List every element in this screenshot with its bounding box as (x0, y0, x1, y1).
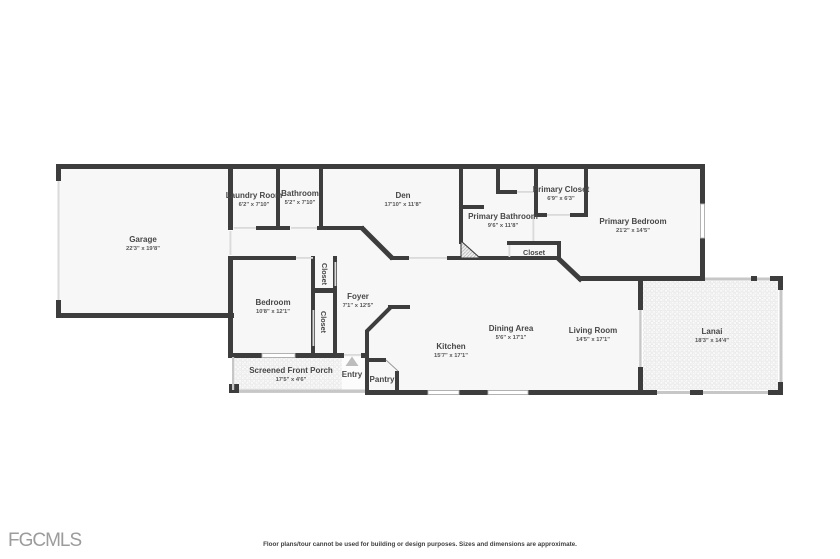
laundry-door (234, 227, 256, 229)
garage-bottom-wall (56, 313, 234, 318)
floor-plan: Garage 22'3" x 19'8" Laundry Room 6'2" x… (0, 0, 840, 559)
room-dims-den: 17'10" x 11'8" (385, 202, 422, 208)
front-door-opening (344, 354, 361, 356)
room-label-lanai: Lanai (702, 327, 723, 336)
room-label-screened-front-porch: Screened Front Porch (249, 366, 333, 375)
porch-left-screen (232, 357, 234, 390)
room-label-pantry: Pantry (370, 375, 395, 384)
den-entrance-opening (409, 257, 447, 259)
lanai-bottom-post (690, 390, 703, 395)
linen-closet-top-wall (507, 241, 561, 245)
room-dims-screened-front-porch: 17'5" x 4'6" (276, 377, 307, 383)
bathroom-door (291, 227, 317, 229)
closet-upper-door (335, 262, 337, 286)
bedroom-window (262, 354, 295, 358)
bedroom-top-wall (228, 256, 296, 260)
lanai-sliding-door (639, 310, 641, 367)
room-label-living-room: Living Room (569, 326, 617, 335)
room-label-bedroom: Bedroom (255, 298, 290, 307)
room-dims-laundry-room: 6'2" x 7'10" (239, 202, 270, 208)
room-label-foyer: Foyer (347, 292, 369, 301)
room-dims-living-room: 14'5" x 17'1" (576, 337, 610, 343)
lanai-bottom-screen-2 (703, 391, 768, 394)
wc-bottom-wall (496, 190, 517, 194)
lanai-bottom-screen-1 (657, 391, 690, 394)
primary-bedroom-window (701, 204, 705, 238)
foyer-bottom-stub-left (333, 353, 344, 358)
room-label-entry: Entry (342, 370, 363, 379)
room-label-primary-bathroom: Primary Bathroom (468, 212, 538, 221)
closet-divider-wall (311, 288, 337, 293)
room-label-bathroom: Bathroom (281, 189, 319, 198)
linen-closet-door (509, 245, 511, 257)
room-label-garage: Garage (129, 235, 157, 244)
room-label-kitchen: Kitchen (436, 342, 465, 351)
room-dims-primary-bathroom: 9'6" x 11'8" (488, 223, 519, 229)
primary-closet-door (547, 214, 570, 216)
room-label-dining-area: Dining Area (489, 324, 534, 333)
wc-left-wall (496, 164, 500, 194)
porch-bottom-screen (239, 390, 365, 393)
room-label-closet-lower: Closet (319, 311, 328, 334)
bedroom-door (296, 257, 313, 259)
garage-left-wall-top (56, 164, 61, 181)
garage-door-opening (58, 181, 60, 300)
wc-door (517, 191, 534, 193)
lanai-top-screen-1 (705, 278, 751, 281)
pantry-top-wall (365, 358, 386, 362)
room-dims-primary-closet: 6'9" x 6'3" (547, 196, 575, 202)
room-dims-lanai: 18'3" x 14'4" (695, 338, 729, 344)
room-dims-kitchen: 15'7" x 17'1" (434, 353, 468, 359)
shower-stub-wall (459, 205, 484, 209)
lanai-top-screen-2 (757, 278, 770, 281)
bedroom-left-wall (228, 256, 233, 358)
bathroom-right-wall (319, 166, 323, 228)
room-dims-primary-bedroom: 21'2" x 14'5" (616, 228, 650, 234)
room-dims-foyer: 7'1" x 12'5" (343, 303, 374, 309)
room-label-primary-closet: Primary Closet (533, 185, 590, 194)
den-bath-divider (459, 164, 463, 244)
room-dims-bathroom: 5'2" x 7'10" (285, 200, 316, 206)
room-dims-bedroom: 10'8" x 12'1" (256, 309, 290, 315)
lanai-corner-br-h (768, 390, 783, 395)
kitchen-top-wall (388, 305, 410, 309)
room-dims-garage: 22'3" x 19'8" (126, 246, 160, 252)
room-label-primary-bedroom: Primary Bedroom (599, 217, 666, 226)
closet-lower-door (313, 310, 315, 346)
lanai-left-wall-top (638, 277, 643, 310)
kitchen-window (428, 391, 459, 395)
lanai-right-screen (780, 290, 783, 382)
lanai-left-wall-bottom (638, 367, 643, 395)
exterior-top-wall (56, 164, 705, 169)
room-label-laundry-room: Laundry Room (226, 191, 282, 200)
den-bottom-wall (317, 226, 364, 230)
room-label-closet-primary: Closet (523, 248, 546, 257)
dining-window (488, 391, 528, 395)
floor-plan-svg: Garage 22'3" x 19'8" Laundry Room 6'2" x… (0, 0, 840, 559)
garage-hall-door (230, 231, 232, 255)
lanai-corner-tr-v (778, 276, 783, 290)
room-label-closet-upper: Closet (320, 263, 329, 286)
lanai-top-post (751, 276, 757, 281)
room-dims-dining-area: 5'6" x 17'1" (496, 335, 527, 341)
disclaimer-text: Floor plans/tour cannot be used for buil… (0, 541, 840, 548)
hall-wall-seg1 (256, 226, 290, 230)
room-label-den: Den (395, 191, 410, 200)
